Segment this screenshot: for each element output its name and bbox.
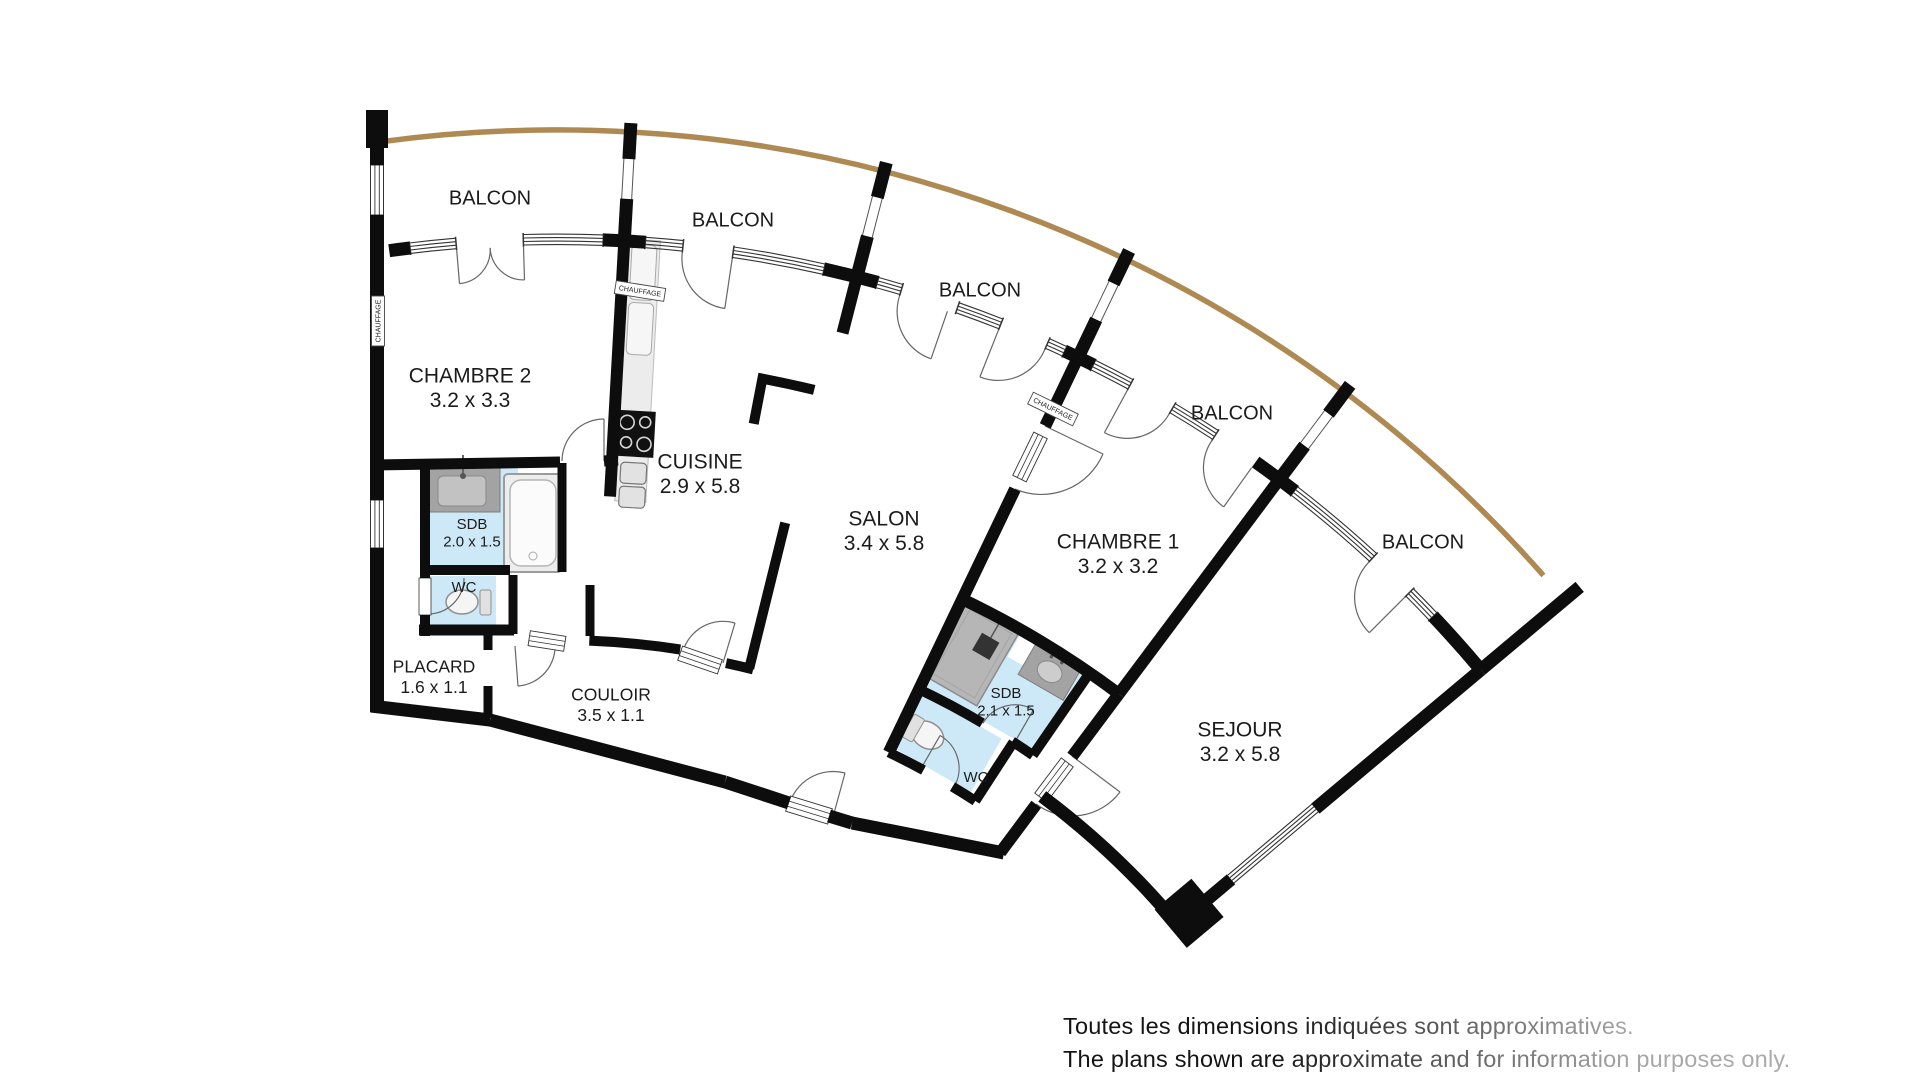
- door-arc: [1355, 562, 1370, 632]
- room-dims-salon: 3.4 x 5.8: [844, 532, 925, 555]
- room-label-placard: PLACARD: [393, 657, 476, 677]
- door-leaf: [1104, 390, 1127, 432]
- door-leaf: [524, 247, 525, 280]
- door-threshold: [786, 796, 833, 824]
- door-leaf: [723, 623, 735, 663]
- window-glass: [1406, 596, 1429, 620]
- sink-basin: [620, 462, 647, 484]
- balcony-divider-window: [622, 158, 634, 200]
- chauffage-text: CHAUFFAGE: [375, 299, 382, 342]
- room-dims-placard: 1.6 x 1.1: [400, 677, 467, 697]
- wall: [852, 823, 1004, 853]
- window-glass: [732, 257, 823, 274]
- window-glass: [1092, 367, 1129, 386]
- door-arc: [682, 253, 725, 309]
- room-label-salon: SALON: [848, 508, 919, 531]
- window-end: [998, 318, 1003, 331]
- room-dims-sdb-2: 2.1 x 1.5: [977, 703, 1035, 720]
- door-arc: [460, 248, 491, 284]
- window-glass: [1228, 804, 1312, 875]
- wall-corner: [366, 110, 388, 148]
- wall: [1433, 616, 1481, 669]
- bathtub-inner: [510, 480, 556, 566]
- room-label-sdb-1: SDB: [457, 516, 488, 533]
- window-glass: [1298, 487, 1377, 554]
- room-dims-sdb-1: 2.0 x 1.5: [443, 534, 501, 551]
- wall: [1329, 385, 1351, 414]
- room-label-chambre-1: CHAMBRE 1: [1057, 531, 1180, 554]
- wall: [1279, 446, 1304, 480]
- wall: [877, 163, 886, 198]
- window-glass: [876, 288, 900, 295]
- window-end: [682, 239, 683, 253]
- wall: [371, 706, 490, 720]
- window-glass: [1413, 589, 1437, 613]
- wall: [1042, 796, 1177, 924]
- window-end: [1045, 337, 1051, 349]
- window-glass: [1047, 345, 1064, 353]
- room-label-sdb-2: SDB: [991, 685, 1022, 702]
- wall: [589, 641, 680, 650]
- window-glass: [733, 254, 824, 271]
- door-arc: [980, 350, 1045, 381]
- room-dims-cuisine: 2.9 x 5.8: [660, 475, 741, 498]
- door-leaf: [725, 259, 732, 309]
- disclaimer-line-2: The plans shown are approximate and for …: [1063, 1043, 1790, 1076]
- wall: [754, 379, 815, 424]
- door-leaf: [1045, 426, 1103, 454]
- window-glass: [1295, 490, 1374, 557]
- window-glass: [1048, 342, 1065, 350]
- window-glass: [877, 284, 901, 291]
- door-threshold: [1035, 758, 1073, 802]
- wall: [749, 523, 785, 669]
- disclaimer-line-1: Toutes les dimensions indiquées sont app…: [1063, 1010, 1790, 1043]
- door-leaf: [1369, 597, 1405, 633]
- door-leaf: [515, 646, 518, 686]
- wall: [624, 199, 626, 241]
- room-label-wc-1: WC: [452, 579, 477, 596]
- toilet-tank: [480, 590, 491, 615]
- disclaimer: Toutes les dimensions indiquées sont app…: [1063, 1010, 1790, 1076]
- window-glass: [1293, 492, 1372, 558]
- stove-icon: [614, 410, 656, 458]
- wall: [1481, 587, 1580, 670]
- balcony-label-2: BALCON: [692, 209, 774, 231]
- wall: [377, 462, 560, 465]
- floor-plan-page: BALCONBALCONBALCONBALCONBALCONCHAMBRE 23…: [0, 0, 1920, 1080]
- room-label-wc-2: WC: [964, 769, 989, 786]
- door-threshold: [528, 631, 566, 651]
- room-dims-sejour: 3.2 x 5.8: [1200, 743, 1281, 766]
- door-leaf: [931, 311, 947, 359]
- wall: [829, 816, 852, 823]
- wall: [1078, 320, 1096, 358]
- window-end: [732, 246, 734, 259]
- wall: [389, 248, 410, 251]
- window-glass: [371, 165, 384, 215]
- window-end: [456, 237, 457, 250]
- window-glass: [1230, 807, 1314, 878]
- door-leaf: [457, 250, 460, 283]
- door-leaf: [980, 330, 999, 377]
- window-glass: [1096, 360, 1134, 379]
- room-label-chambre-2: CHAMBRE 2: [409, 365, 532, 388]
- window-glass: [1094, 363, 1131, 382]
- wall: [824, 269, 877, 282]
- wall: [857, 236, 868, 277]
- window-glass: [1050, 339, 1067, 347]
- balcony-divider-window: [1300, 410, 1333, 450]
- window-glass: [878, 281, 902, 288]
- window-end: [1127, 378, 1133, 390]
- wall: [1000, 804, 1036, 852]
- balcony-divider-window: [1091, 280, 1118, 322]
- door-arc: [1104, 414, 1169, 438]
- wc1-door-opening: [419, 578, 431, 615]
- window-glass: [1234, 812, 1318, 883]
- wall: [1315, 670, 1480, 809]
- wall: [1072, 694, 1119, 757]
- window-glass: [523, 241, 603, 242]
- wall: [843, 277, 857, 333]
- window-glass: [523, 238, 603, 239]
- balcony-divider-window: [862, 195, 882, 238]
- door-arc: [683, 621, 735, 651]
- door-arc: [897, 296, 931, 359]
- window-glass: [957, 309, 1000, 325]
- room-label-couloir: COULOIR: [571, 685, 651, 705]
- chauffage-label-1: CHAUFFAGE: [372, 296, 385, 346]
- wall: [1119, 479, 1280, 694]
- room-dims-chambre-2: 3.2 x 3.3: [430, 389, 511, 412]
- balcony-label-5: BALCON: [1382, 531, 1464, 553]
- sdb1-sink: [438, 476, 486, 506]
- room-dims-couloir: 3.5 x 1.1: [577, 705, 644, 725]
- window-end: [955, 301, 959, 314]
- window-glass: [958, 306, 1001, 322]
- door-leaf: [833, 773, 845, 817]
- window-end: [900, 283, 904, 296]
- room-label-sejour: SEJOUR: [1197, 719, 1282, 742]
- door-arc: [490, 248, 524, 280]
- window-end: [1405, 588, 1415, 598]
- door-threshold: [1013, 432, 1048, 482]
- door-leaf: [1224, 468, 1252, 507]
- door-leaf: [1072, 756, 1120, 792]
- balcony-label-1: BALCON: [449, 187, 531, 209]
- balcony-label-3: BALCON: [939, 279, 1021, 301]
- window-glass: [1408, 594, 1431, 618]
- room-label-cuisine: CUISINE: [657, 451, 742, 474]
- window-glass: [879, 278, 903, 285]
- window-glass: [1045, 348, 1062, 356]
- faucet-icon: [460, 473, 466, 479]
- wall: [490, 720, 725, 782]
- window-glass: [523, 234, 603, 235]
- wall: [725, 782, 789, 803]
- balcony-label-4: BALCON: [1191, 402, 1273, 424]
- floor-plan-svg: BALCONBALCONBALCONBALCONBALCONCHAMBRE 23…: [0, 0, 1920, 1080]
- window-glass: [1091, 370, 1128, 389]
- window-glass: [371, 500, 384, 548]
- door-threshold: [678, 646, 723, 674]
- window-glass: [1232, 809, 1316, 880]
- door-arc: [562, 419, 604, 461]
- window-glass: [1291, 495, 1370, 561]
- sink-basin: [618, 486, 645, 508]
- room-dims-chambre-1: 3.2 x 3.2: [1078, 555, 1159, 578]
- door-arc: [1203, 441, 1223, 507]
- wall: [629, 123, 631, 159]
- window-glass: [1411, 591, 1435, 615]
- kitchen-cabinet: [626, 302, 654, 355]
- window-glass: [524, 245, 604, 246]
